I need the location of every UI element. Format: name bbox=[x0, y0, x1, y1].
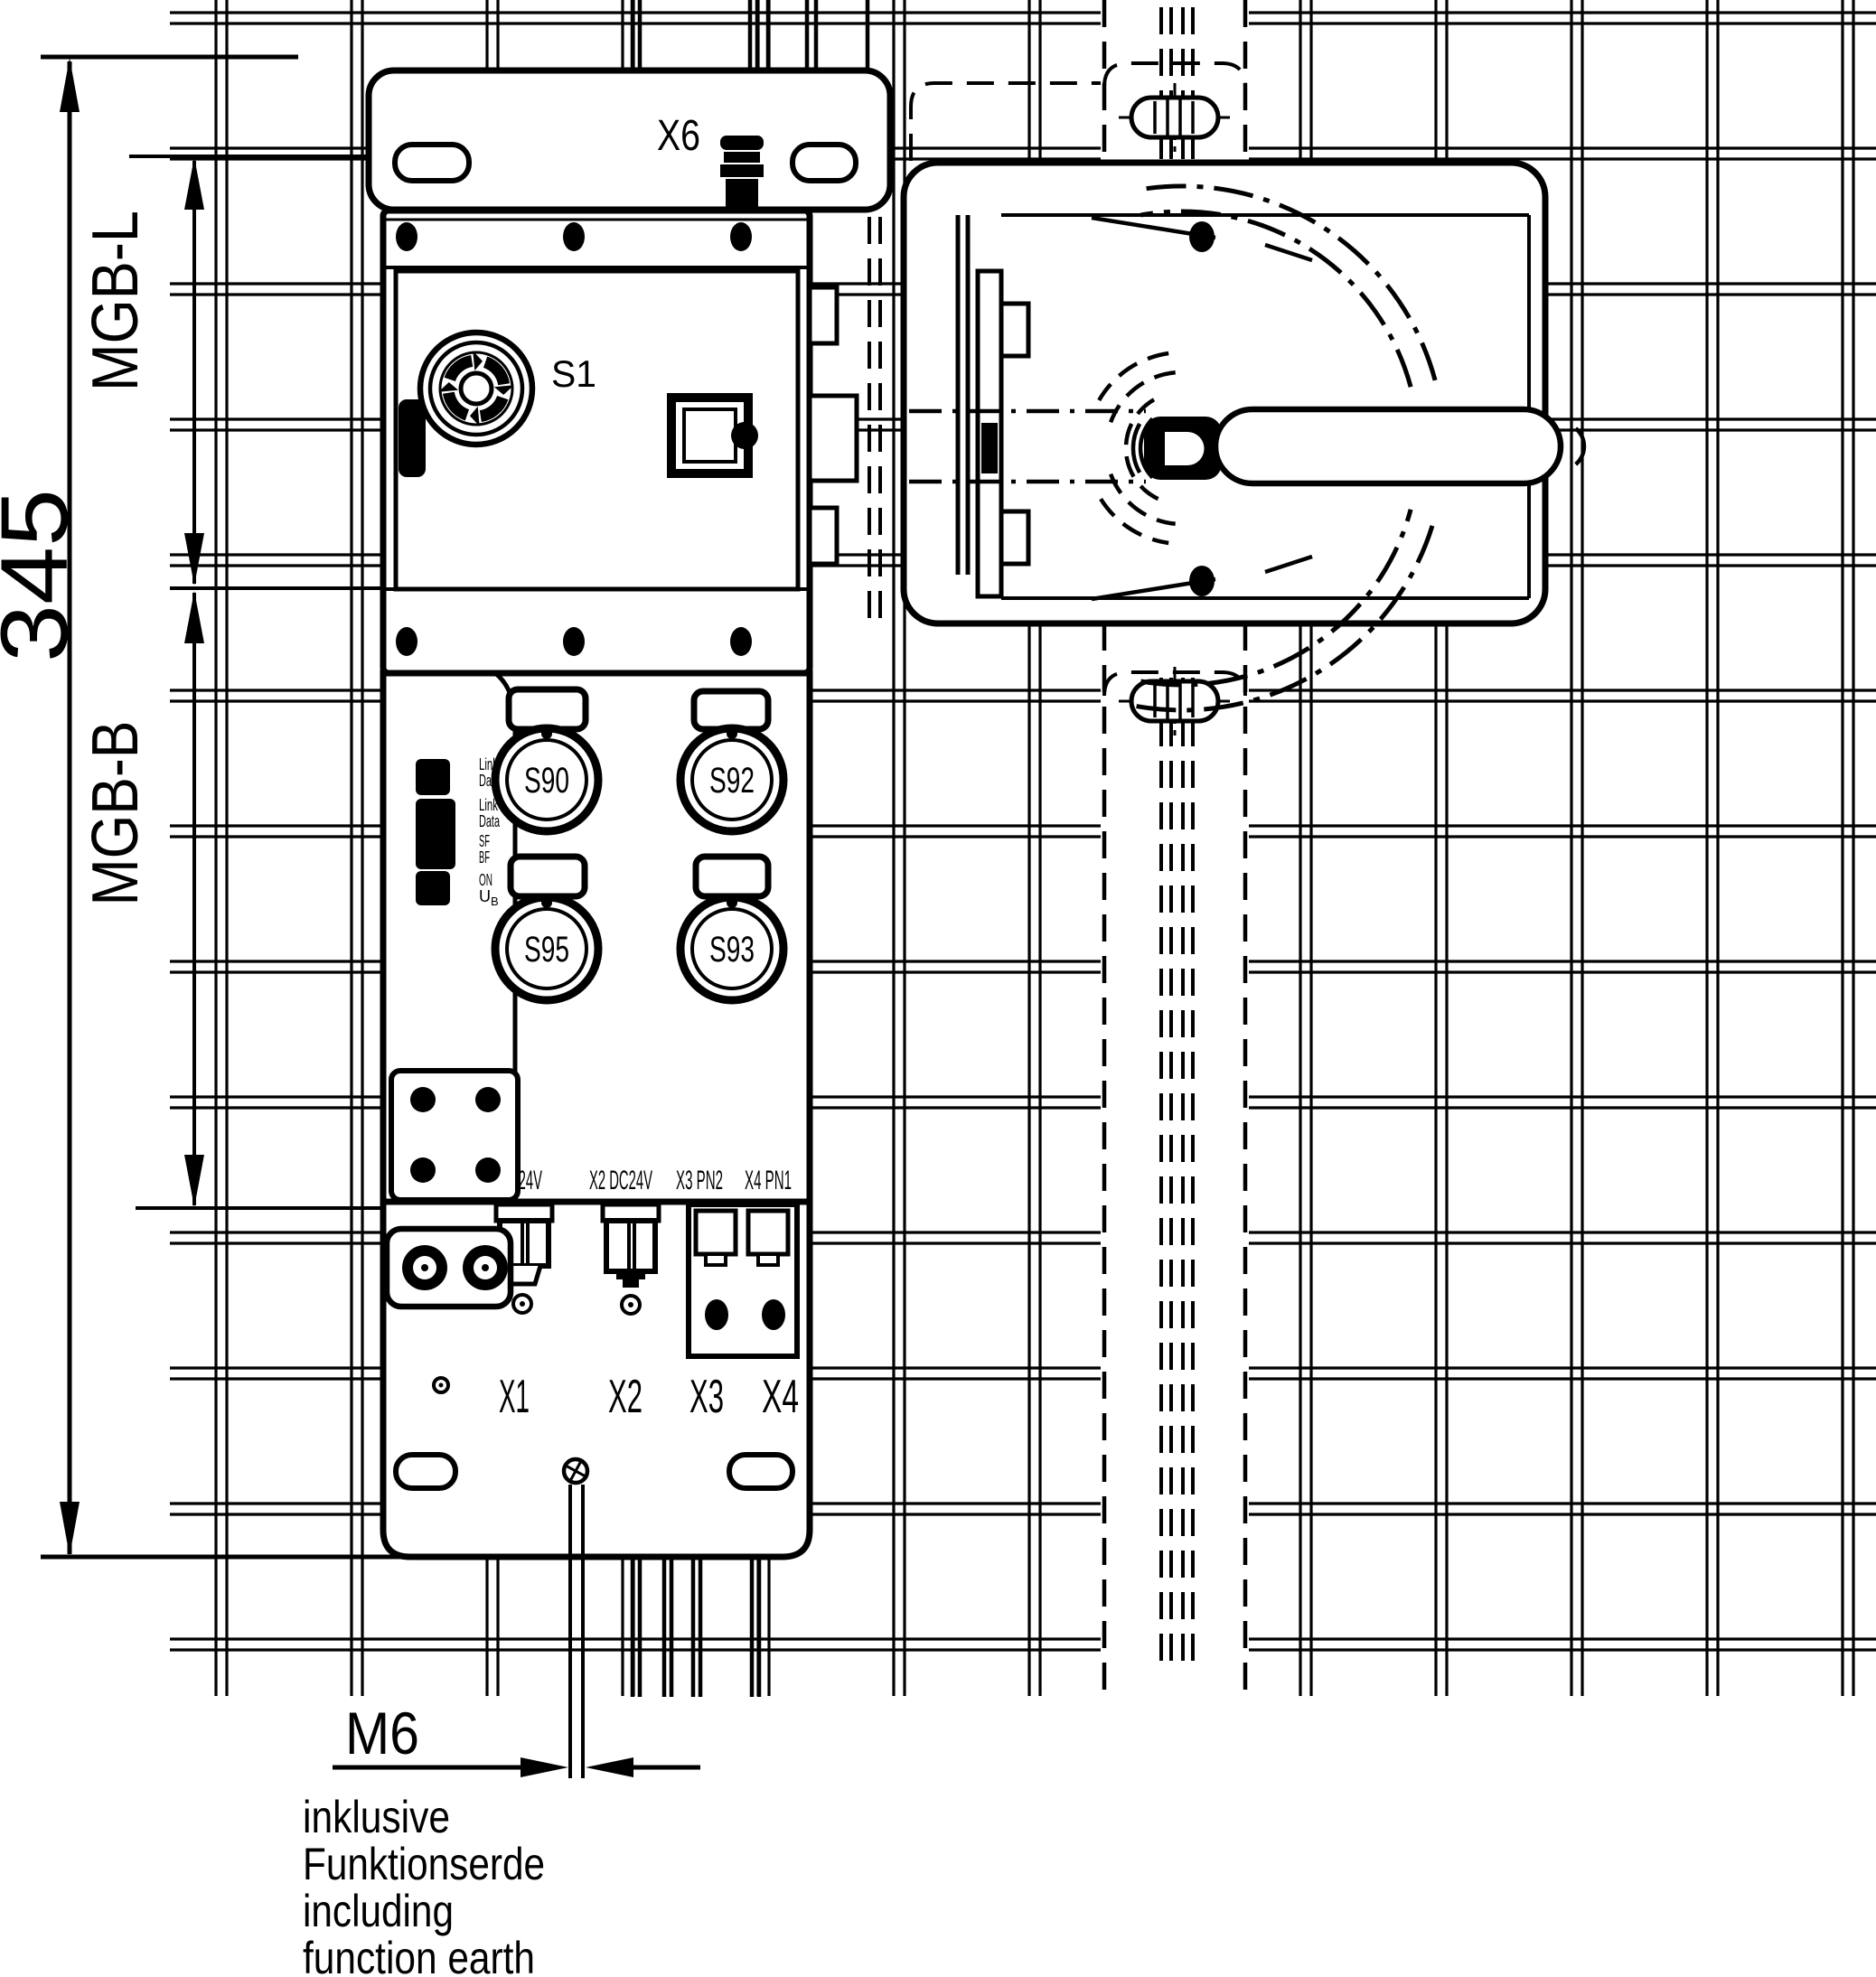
flange-slot-left bbox=[395, 145, 469, 181]
footnote-line-2: Funktionserde bbox=[303, 1839, 545, 1889]
lock-module: S1 bbox=[383, 211, 880, 673]
footnote-line-3: including bbox=[303, 1886, 454, 1936]
rj45-port-x4[interactable] bbox=[748, 1211, 788, 1254]
button-s93-label: S93 bbox=[709, 930, 755, 970]
top-flange: X6 bbox=[369, 70, 890, 210]
swivel-bracket bbox=[391, 1071, 518, 1200]
led-strip bbox=[416, 759, 455, 905]
x6-connector bbox=[720, 136, 764, 210]
connector-x3-x4-housing[interactable] bbox=[689, 1204, 797, 1356]
earth-terminal-block bbox=[387, 1229, 511, 1307]
port-label-x3: X3 PN2 bbox=[676, 1166, 723, 1195]
estop-tag bbox=[399, 399, 426, 477]
flange-slot-right bbox=[793, 145, 856, 181]
module-label-mgb-l: MGB-L bbox=[80, 211, 152, 391]
led-label-sf: SF bbox=[479, 832, 490, 850]
connector-label-x4: X4 bbox=[762, 1371, 799, 1423]
connector-label-x3: X3 bbox=[689, 1371, 724, 1423]
module-label-mgb-b: MGB-B bbox=[80, 721, 152, 906]
lock-bolt bbox=[810, 396, 857, 481]
button-s95-label: S95 bbox=[524, 930, 569, 970]
estop-label: S1 bbox=[551, 352, 596, 395]
button-s90-label: S90 bbox=[524, 761, 569, 801]
button-s95[interactable]: S95 bbox=[495, 857, 598, 1000]
footnote-line-4: function earth bbox=[303, 1933, 535, 1977]
technical-drawing-mgb-mounting: X6 bbox=[0, 0, 1876, 1977]
button-s92-label: S92 bbox=[709, 761, 755, 801]
plate-slot-right bbox=[729, 1455, 793, 1488]
footnote-line-1: inklusive bbox=[303, 1792, 450, 1842]
mgb-unit: X6 bbox=[369, 70, 890, 1557]
port-labels: X1 DC24V X2 DC24V X3 PN2 X4 PN1 bbox=[479, 1166, 792, 1195]
x6-label: X6 bbox=[657, 112, 700, 160]
rj45-port-x3[interactable] bbox=[696, 1211, 736, 1254]
plate-slot-left bbox=[396, 1455, 455, 1488]
function-earth-screw bbox=[564, 1459, 587, 1483]
led-label-bf: BF bbox=[479, 848, 490, 867]
port-label-x4: X4 PN1 bbox=[745, 1166, 792, 1195]
dim-m6-label: M6 bbox=[345, 1700, 419, 1766]
dim-overall-height-label: 345 bbox=[0, 489, 88, 662]
led-label-data2: Data bbox=[479, 812, 501, 830]
estop-button[interactable] bbox=[420, 333, 532, 445]
led-label-on: ON bbox=[479, 871, 492, 889]
port-label-x2: X2 DC24V bbox=[589, 1166, 652, 1195]
connector-label-x1: X1 bbox=[499, 1371, 530, 1423]
button-s90[interactable]: S90 bbox=[495, 689, 598, 831]
handle-module bbox=[904, 163, 1561, 623]
handle-knob[interactable] bbox=[1144, 417, 1222, 480]
connector-label-x2: X2 bbox=[608, 1371, 643, 1423]
handle-bar[interactable] bbox=[1215, 409, 1561, 483]
button-s92[interactable]: S92 bbox=[680, 691, 783, 831]
button-s93[interactable]: S93 bbox=[680, 857, 783, 1000]
